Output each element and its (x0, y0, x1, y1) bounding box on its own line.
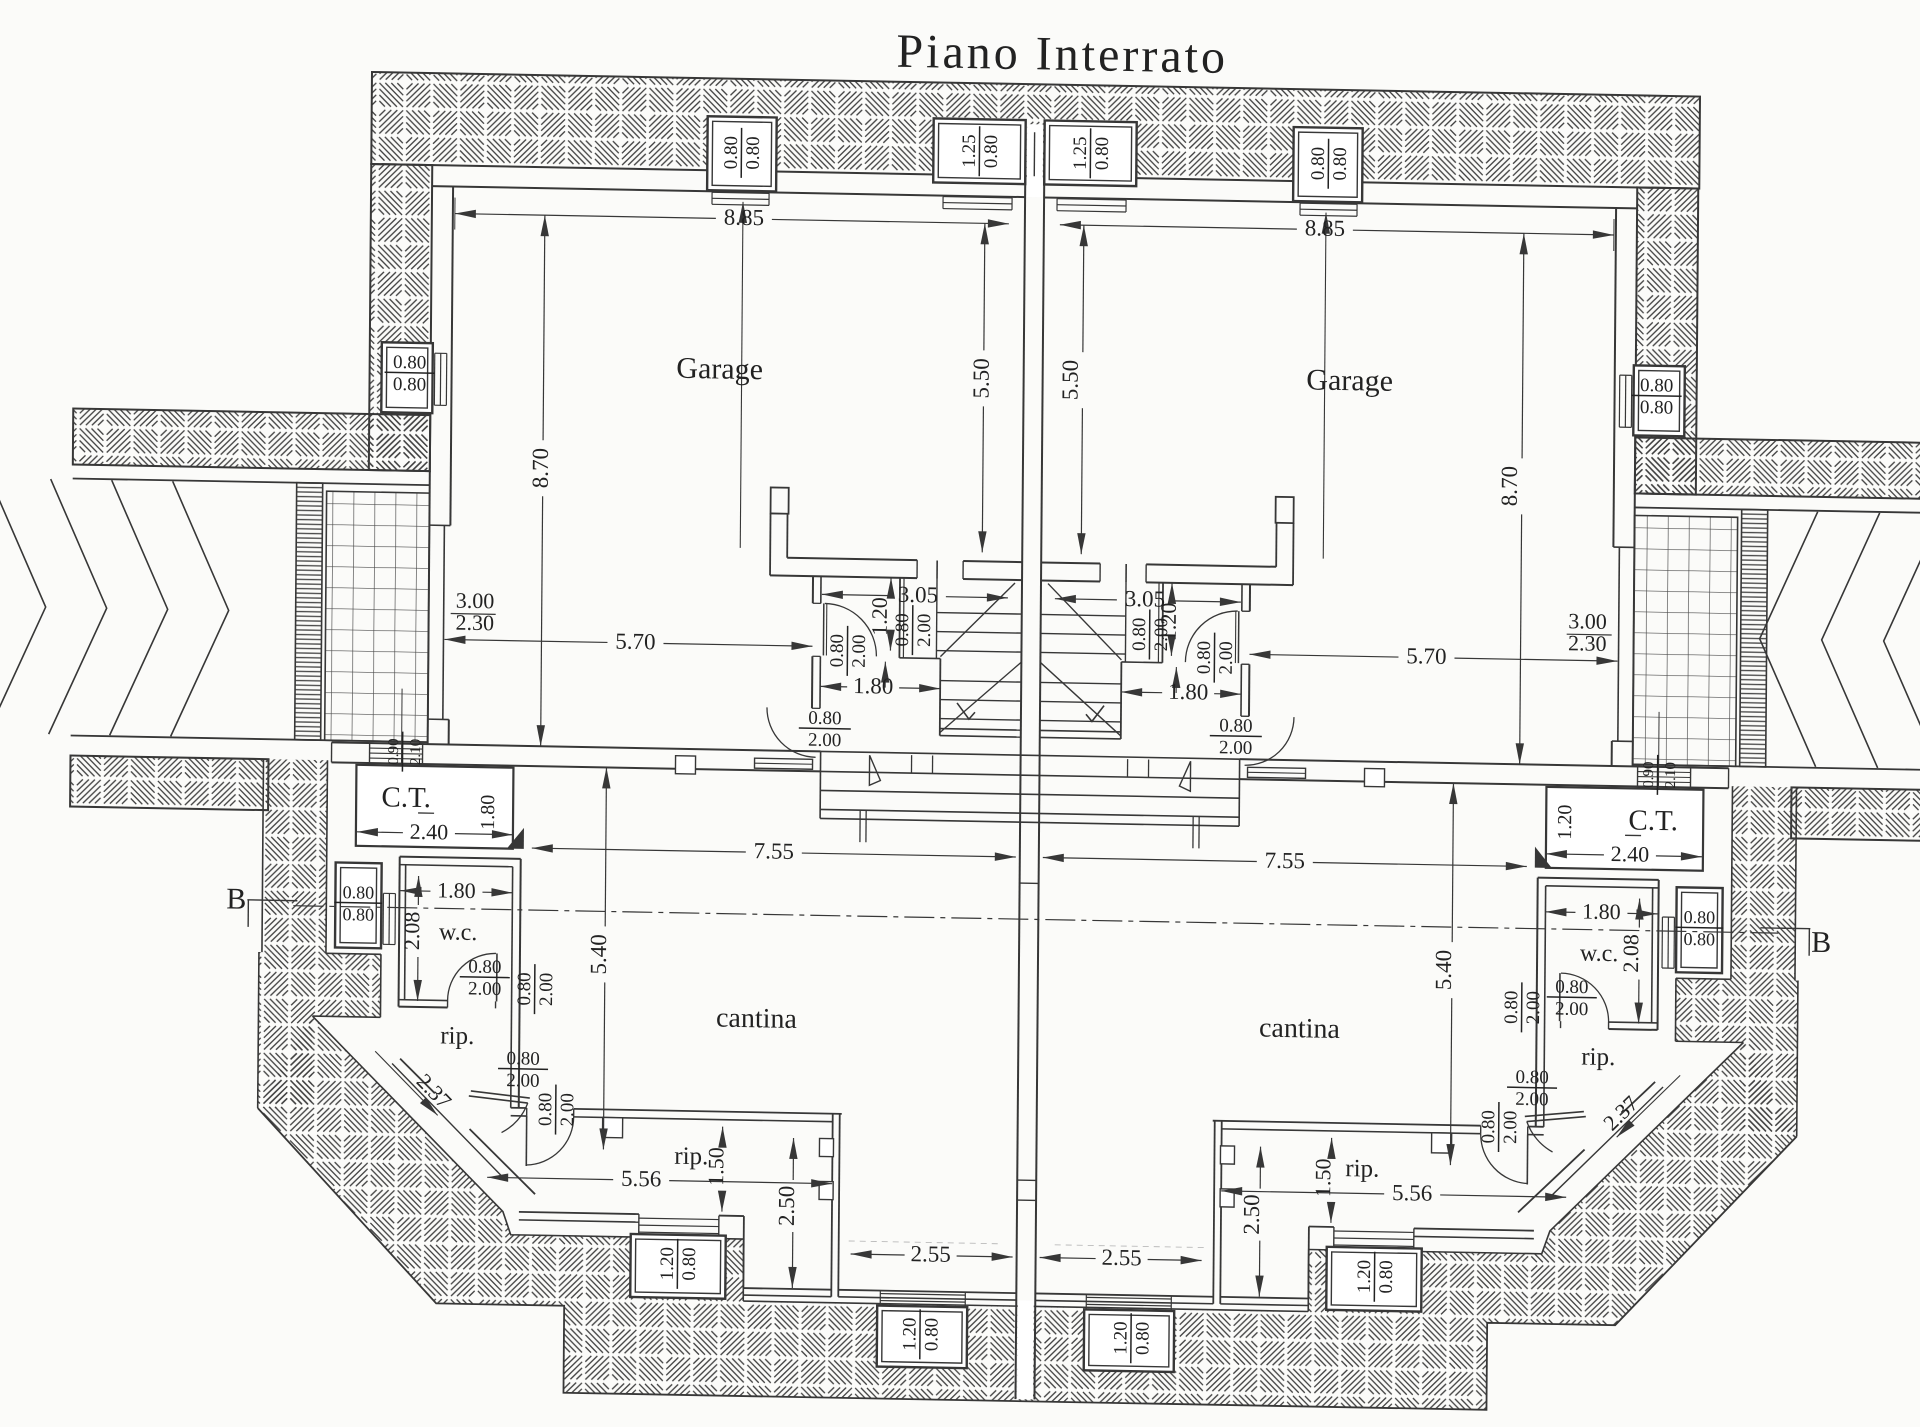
svg-text:2.00: 2.00 (1515, 1089, 1548, 1111)
svg-text:2.00: 2.00 (468, 978, 501, 1000)
svg-text:1.20: 1.20 (867, 597, 892, 636)
svg-text:1.80: 1.80 (437, 877, 476, 903)
svg-text:2.00: 2.00 (1216, 641, 1237, 675)
svg-text:5.40: 5.40 (1431, 950, 1456, 991)
svg-text:0.80: 0.80 (1555, 977, 1588, 999)
svg-text:cantina: cantina (1259, 1013, 1341, 1046)
svg-text:0.80: 0.80 (393, 374, 426, 396)
svg-text:2.00: 2.00 (1500, 1110, 1521, 1144)
svg-text:2.08: 2.08 (1618, 934, 1643, 973)
svg-text:2.55: 2.55 (1101, 1245, 1141, 1271)
svg-text:0.80: 0.80 (393, 352, 426, 374)
svg-text:0.80: 0.80 (1478, 1110, 1499, 1144)
svg-text:5.50: 5.50 (1057, 360, 1082, 401)
svg-text:2.00: 2.00 (506, 1070, 539, 1092)
svg-text:2.00: 2.00 (849, 634, 870, 668)
svg-text:0.80: 0.80 (981, 135, 1002, 169)
svg-text:2.55: 2.55 (910, 1241, 950, 1267)
svg-text:7.55: 7.55 (754, 838, 794, 864)
svg-text:5.40: 5.40 (586, 934, 611, 975)
svg-text:8.70: 8.70 (1497, 466, 1522, 507)
svg-text:rip.: rip. (440, 1022, 474, 1050)
svg-text:0.80: 0.80 (921, 1318, 942, 1352)
svg-text:1.20: 1.20 (1354, 1260, 1375, 1294)
svg-text:2.10: 2.10 (408, 739, 424, 766)
svg-text:2.08: 2.08 (399, 911, 424, 950)
svg-text:2.00: 2.00 (914, 613, 935, 647)
svg-text:2.30: 2.30 (1568, 630, 1607, 656)
svg-text:0.80: 0.80 (1219, 715, 1252, 737)
svg-text:0.80: 0.80 (1194, 641, 1215, 675)
svg-text:7.55: 7.55 (1265, 848, 1305, 874)
svg-text:5.56: 5.56 (1392, 1180, 1432, 1206)
svg-text:0.80: 0.80 (679, 1247, 700, 1281)
svg-text:8.85: 8.85 (724, 205, 764, 231)
svg-text:2.40: 2.40 (1611, 841, 1650, 867)
svg-text:w.c.: w.c. (1580, 940, 1619, 967)
svg-text:1.50: 1.50 (1310, 1158, 1335, 1197)
svg-text:2.00: 2.00 (808, 730, 841, 752)
svg-text:0.80: 0.80 (1640, 375, 1673, 397)
svg-text:Garage: Garage (1306, 363, 1393, 398)
svg-text:0.80: 0.80 (342, 904, 374, 925)
svg-text:0.80: 0.80 (827, 634, 848, 668)
svg-text:rip.: rip. (1581, 1044, 1615, 1072)
svg-text:8.85: 8.85 (1305, 215, 1345, 241)
svg-text:1.25: 1.25 (1070, 136, 1091, 170)
svg-text:1.20: 1.20 (657, 1247, 678, 1281)
svg-text:5.50: 5.50 (968, 358, 993, 399)
svg-text:0.80: 0.80 (1132, 1322, 1153, 1356)
svg-text:3.05: 3.05 (898, 582, 938, 608)
svg-text:0.80: 0.80 (1684, 907, 1716, 928)
svg-text:B: B (226, 882, 246, 915)
svg-text:0.80: 0.80 (1376, 1260, 1397, 1294)
svg-text:B: B (1811, 926, 1831, 959)
svg-text:C.T.: C.T. (1628, 804, 1678, 837)
svg-text:1.50: 1.50 (703, 1147, 728, 1186)
svg-text:0.80: 0.80 (808, 708, 841, 730)
svg-text:5.56: 5.56 (621, 1166, 661, 1192)
svg-text:1.25: 1.25 (959, 134, 980, 168)
svg-text:2.00: 2.00 (1219, 737, 1252, 759)
svg-text:0.90: 0.90 (386, 738, 402, 765)
svg-text:0.80: 0.80 (1515, 1067, 1548, 1089)
svg-text:0.80: 0.80 (1640, 397, 1673, 419)
svg-text:0.80: 0.80 (1683, 929, 1715, 950)
svg-text:8.70: 8.70 (528, 448, 553, 489)
svg-text:0.80: 0.80 (468, 956, 501, 978)
svg-text:0.80: 0.80 (514, 972, 535, 1006)
svg-text:Garage: Garage (676, 352, 763, 387)
svg-text:2.50: 2.50 (1239, 1194, 1264, 1235)
svg-text:2.00: 2.00 (1555, 999, 1588, 1021)
svg-text:2.50: 2.50 (774, 1185, 799, 1226)
svg-text:0.80: 0.80 (1330, 147, 1351, 181)
svg-text:0.80: 0.80 (535, 1093, 556, 1127)
svg-text:cantina: cantina (716, 1003, 798, 1036)
svg-text:0.80: 0.80 (721, 136, 742, 170)
svg-text:1.20: 1.20 (899, 1317, 920, 1351)
svg-text:0.80: 0.80 (1092, 137, 1113, 171)
svg-text:1.80: 1.80 (1168, 679, 1208, 705)
svg-text:0.80: 0.80 (1501, 990, 1522, 1024)
svg-text:2.10: 2.10 (1663, 762, 1679, 789)
svg-text:1.80: 1.80 (853, 673, 893, 699)
svg-text:w.c.: w.c. (439, 919, 478, 946)
svg-text:2.00: 2.00 (536, 973, 557, 1007)
svg-text:1.20: 1.20 (1110, 1321, 1131, 1355)
svg-text:C.T.: C.T. (381, 781, 431, 814)
svg-text:0.80: 0.80 (892, 613, 913, 647)
svg-text:1.20: 1.20 (1554, 804, 1576, 839)
svg-text:2.00: 2.00 (557, 1093, 578, 1127)
svg-text:1.80: 1.80 (477, 795, 499, 830)
svg-text:5.70: 5.70 (615, 629, 655, 655)
svg-text:0.90: 0.90 (1641, 761, 1657, 788)
svg-text:2.40: 2.40 (410, 819, 449, 845)
svg-text:Piano Interrato: Piano Interrato (896, 25, 1228, 84)
svg-text:5.70: 5.70 (1406, 643, 1446, 669)
svg-text:1.80: 1.80 (1582, 899, 1621, 925)
svg-text:0.80: 0.80 (506, 1048, 539, 1070)
svg-text:2.00: 2.00 (1151, 618, 1172, 652)
svg-text:0.80: 0.80 (1129, 617, 1150, 651)
svg-text:2.30: 2.30 (456, 610, 495, 636)
svg-text:2.00: 2.00 (1523, 991, 1544, 1025)
svg-text:0.80: 0.80 (1308, 147, 1329, 181)
svg-text:rip.: rip. (1345, 1155, 1379, 1183)
svg-text:0.80: 0.80 (343, 882, 375, 903)
svg-text:0.80: 0.80 (743, 136, 764, 170)
